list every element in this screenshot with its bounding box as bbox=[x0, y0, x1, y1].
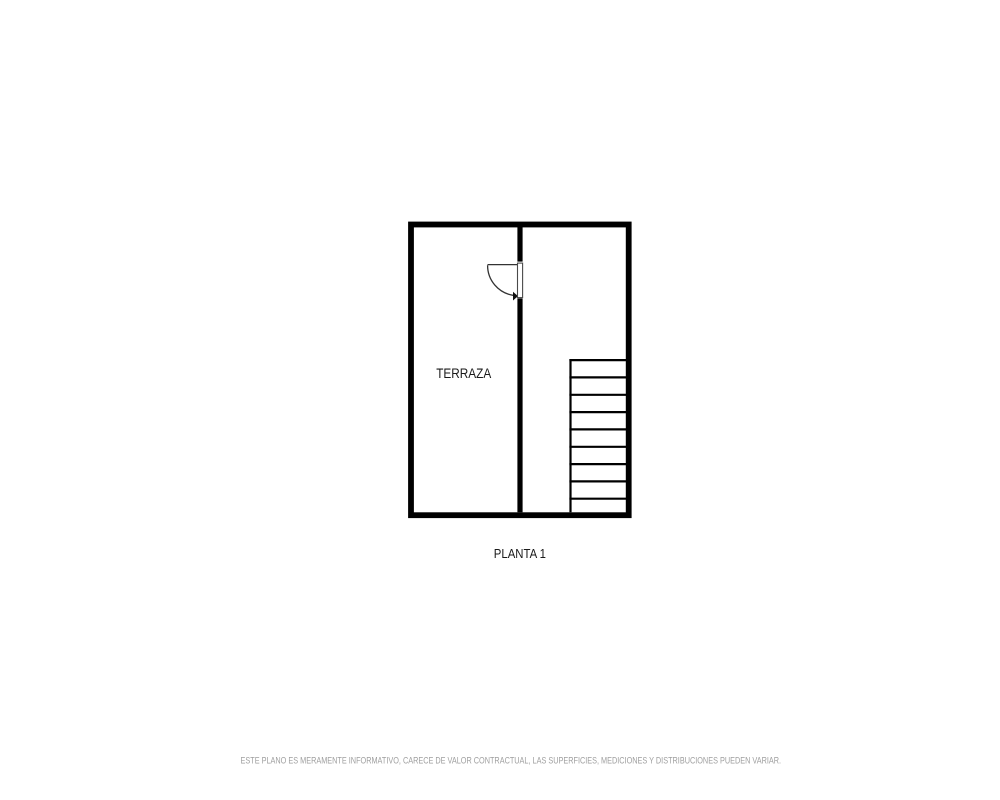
svg-text:TERRAZA: TERRAZA bbox=[436, 366, 491, 381]
svg-text:PLANTA 1: PLANTA 1 bbox=[494, 546, 546, 561]
svg-text:ESTE PLANO ES MERAMENTE INFORM: ESTE PLANO ES MERAMENTE INFORMATIVO, CAR… bbox=[241, 754, 782, 765]
